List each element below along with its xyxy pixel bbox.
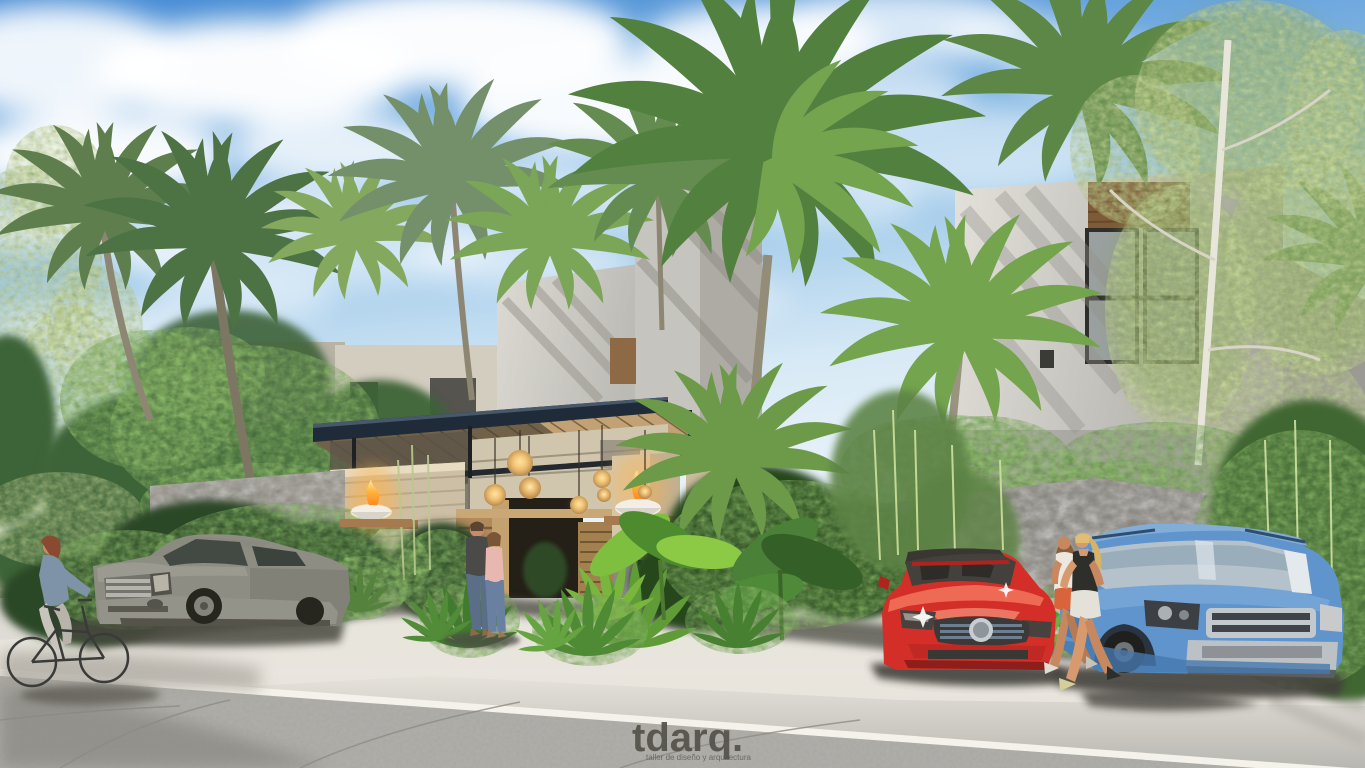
svg-text:taller de diseño y arquitectur: taller de diseño y arquitectura (646, 753, 752, 762)
